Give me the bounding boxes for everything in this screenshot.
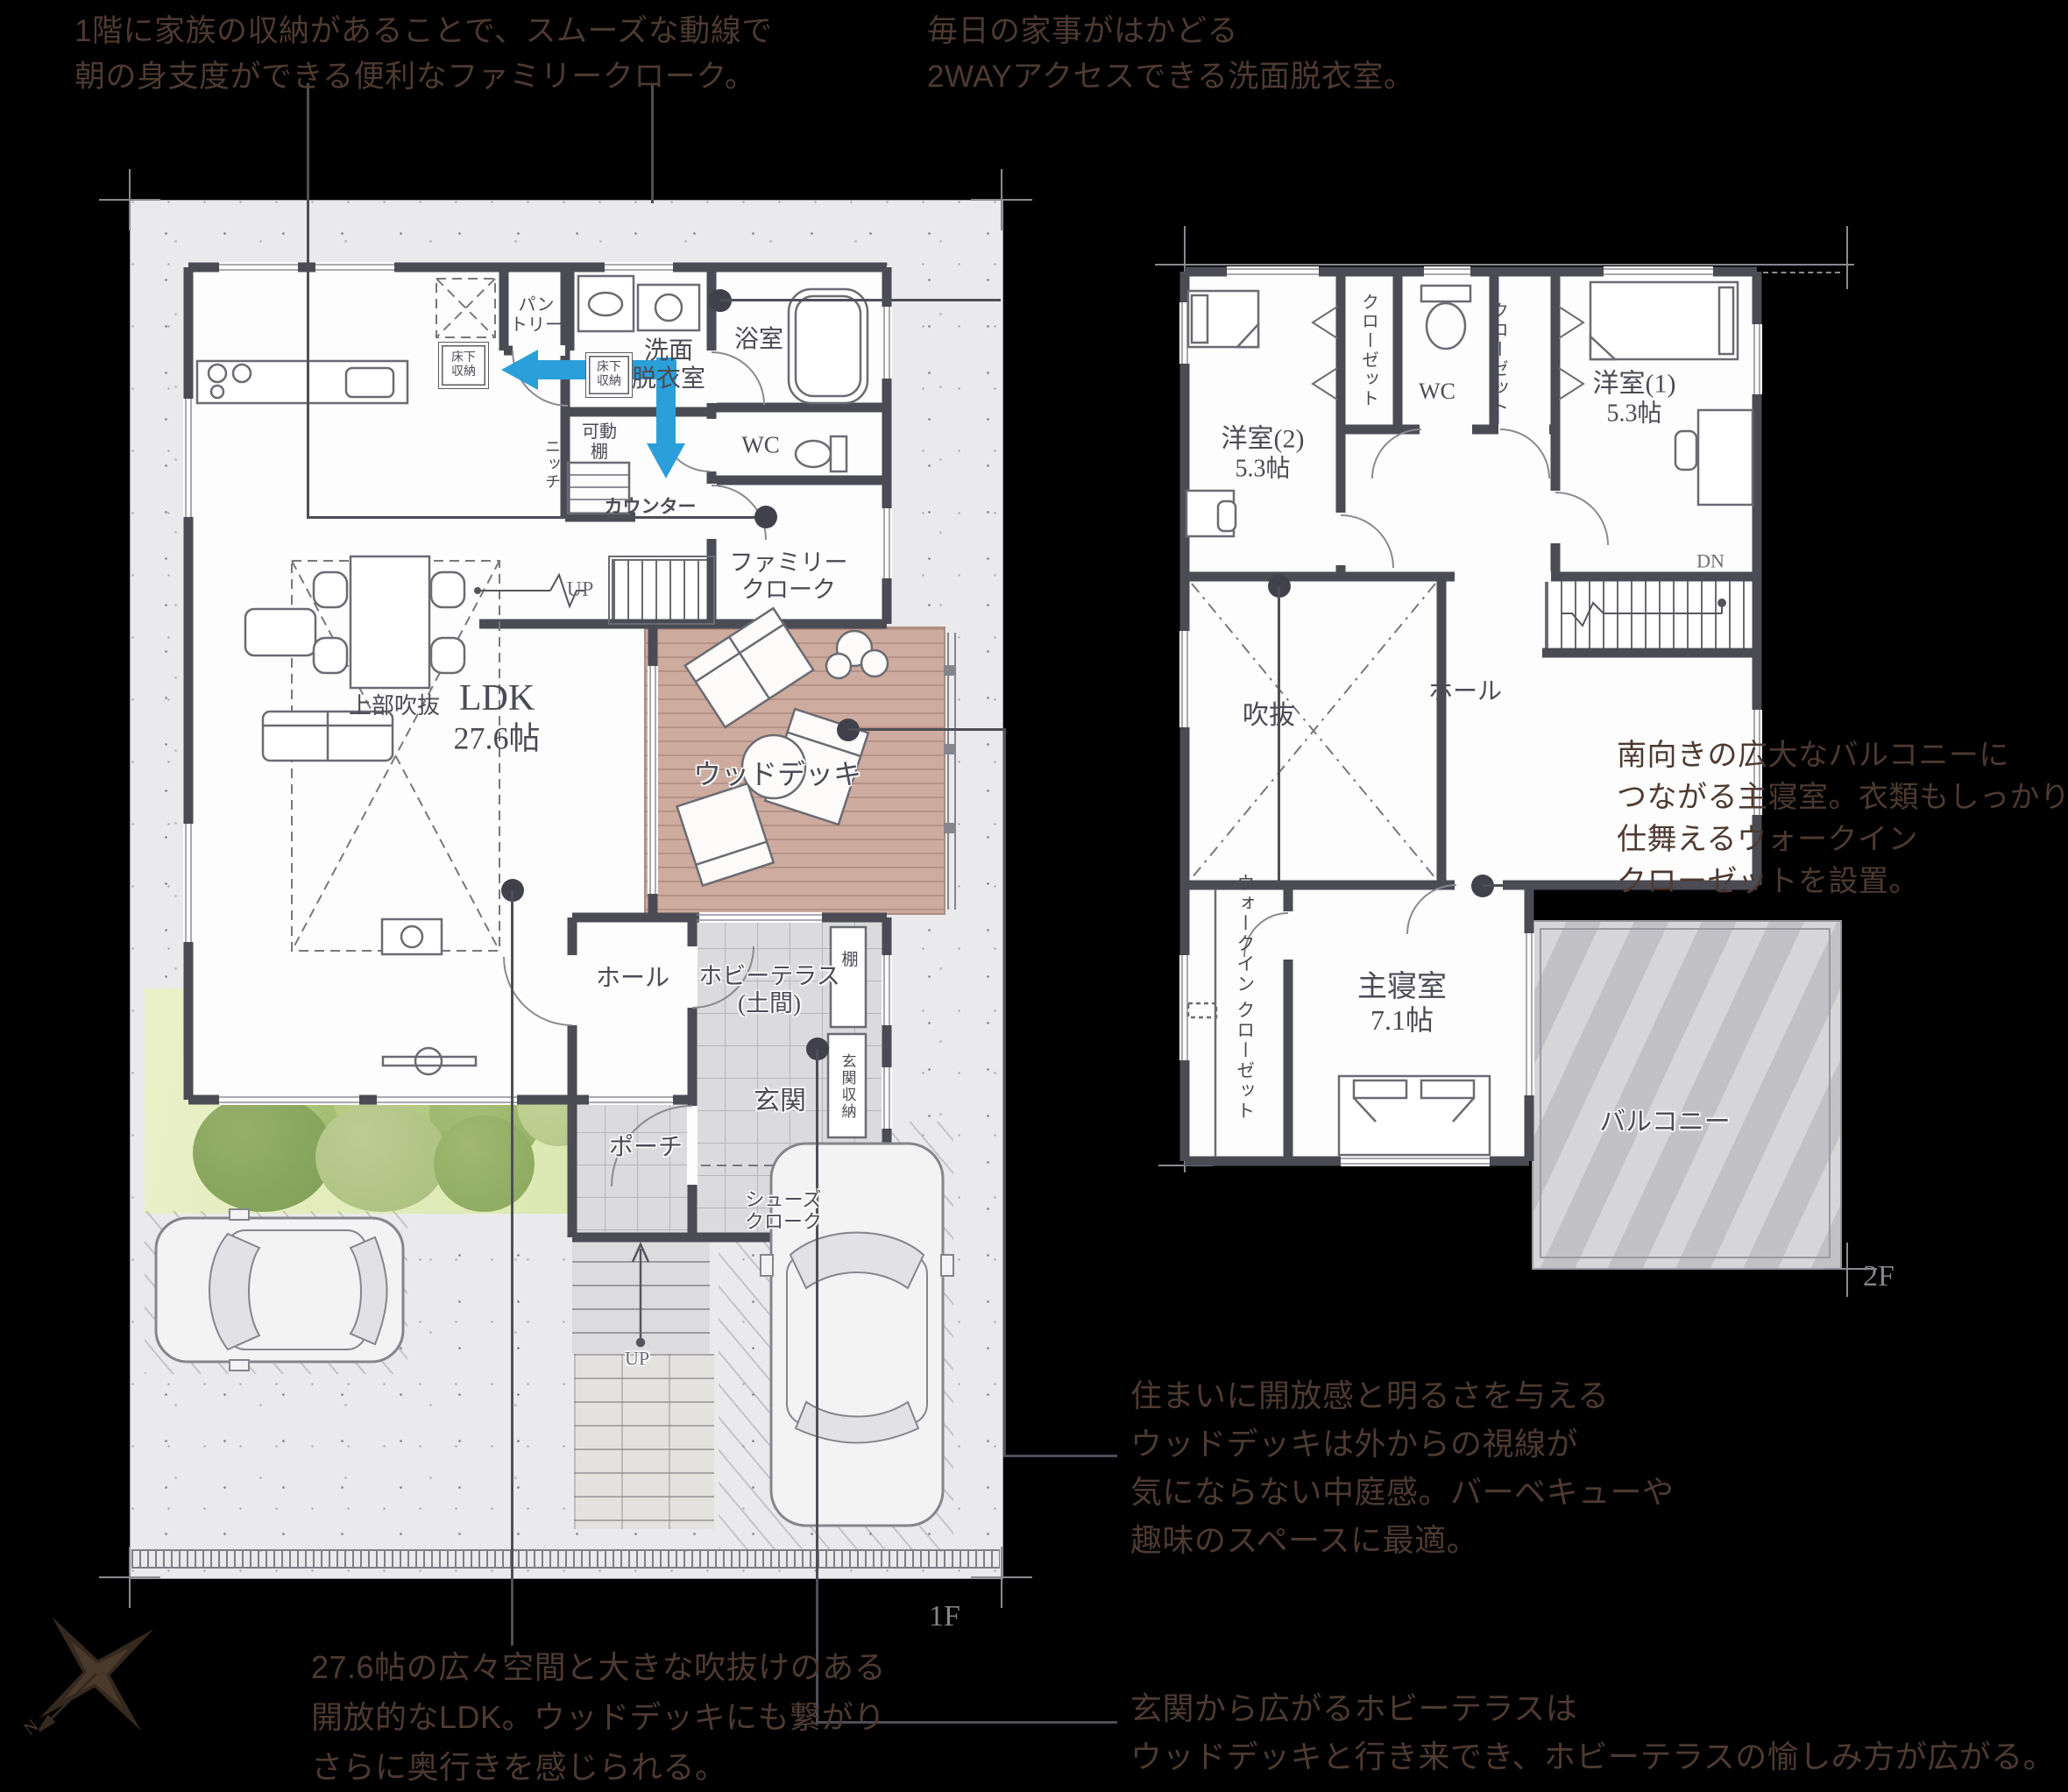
label-room2: 洋室(2) 5.3帖 <box>1222 425 1305 484</box>
label-balcony: バルコニー <box>1599 1108 1730 1138</box>
label-dn: DN <box>1696 549 1725 571</box>
leader-entrance-v <box>816 1049 818 1724</box>
floorplan-page: { "annotations": { "family_cloak": ["1階に… <box>0 0 2068 1788</box>
label-floor-storage-2: 床下収納 <box>585 352 633 398</box>
label-shoes-cloak: シューズ クローク <box>745 1189 822 1234</box>
label-floor-storage-1: 床下収納 <box>438 342 489 389</box>
label-shelf: 棚 <box>837 951 860 969</box>
label-ldk-size: 27.6帖 <box>453 720 540 756</box>
compass-icon <box>22 1599 171 1748</box>
floor-tag-2f: 2F <box>1863 1260 1894 1293</box>
leader-wood-deck-v <box>1003 728 1006 1457</box>
label-ldk: LDK <box>459 677 535 719</box>
leader-master-h <box>1483 884 1630 887</box>
stairs-arrow-2f <box>1562 599 1725 626</box>
deck-furniture <box>677 608 888 886</box>
approach-arrow <box>633 1244 648 1346</box>
label-niche: ニッチ <box>541 438 563 491</box>
leader-washroom-h <box>720 299 1001 301</box>
floor-tag-1f: 1F <box>929 1600 960 1633</box>
label-hobby-terrace: ホビーテラス (土間) <box>698 963 839 1017</box>
label-hall-1f: ホール <box>596 965 669 993</box>
leader-wood-deck-h2 <box>1003 1455 1117 1457</box>
label-family-cloak: ファミリー クローク <box>730 549 848 604</box>
2way-arrow-down-head <box>647 443 685 478</box>
label-wc-2f: WC <box>1419 379 1455 405</box>
label-counter: カウンター <box>605 496 697 517</box>
label-void-above: 上部吹抜 <box>349 693 440 719</box>
label-hall-2f: ホール <box>1428 678 1502 706</box>
stairs-arrow-1f <box>474 556 714 624</box>
label-closet-right: クローゼット <box>1486 301 1512 417</box>
annotation-wood-deck: 住まいに開放感と明るさを与える ウッドデッキは外からの視線が 気にならない中庭感… <box>1130 1371 1675 1564</box>
label-entrance: 玄関 <box>754 1087 806 1117</box>
annotation-ldk: 27.6帖の広々空間と大きな吹抜けのある 開放的なLDK。ウッドデッキにも繋がり… <box>311 1642 886 1792</box>
annotation-family-cloak: 1階に家族の収納があることで、スムーズな動線で 朝の身支度ができる便利なファミリ… <box>74 9 773 100</box>
annotation-washroom: 毎日の家事がはかどる 2WAYアクセスできる洗面脱衣室。 <box>927 9 1414 100</box>
leader-family-cloak-v <box>307 83 309 519</box>
label-void-2f: 吹抜 <box>1243 701 1295 732</box>
deck-railing <box>945 633 955 910</box>
leader-dot-family-cloak <box>754 506 777 528</box>
label-up-1f: UP <box>567 578 594 603</box>
leader-family-cloak-h <box>307 516 766 519</box>
label-bath: 浴室 <box>734 326 783 354</box>
label-pantry: パン トリー <box>510 295 563 336</box>
car-left <box>156 1209 403 1371</box>
label-wood-deck: ウッドデッキ <box>693 759 861 791</box>
annotation-hobby-terrace: 玄関から広がるホビーテラスは ウッドデッキと行き来でき、ホビーテラスの愉しみ方が… <box>1130 1684 2055 1781</box>
label-closet-left: クローゼット <box>1356 293 1382 408</box>
balcony-railing <box>1540 929 1830 1257</box>
label-wc-1f: WC <box>741 431 780 458</box>
label-porch: ポーチ <box>609 1134 683 1162</box>
label-room1: 洋室(1) 5.3帖 <box>1593 370 1676 429</box>
leader-ldk-v <box>511 890 513 1646</box>
leader-washroom-v <box>651 83 654 203</box>
void-dashed-2f <box>1192 584 1435 878</box>
label-washroom: 洗面 脱衣室 <box>632 337 705 393</box>
label-entrance-storage: 玄関収納 <box>837 1053 859 1120</box>
annotation-master-bedroom: 南向きの広大なバルコニーに つながる主寝室。衣類もしっかり 仕舞えるウォークイン… <box>1617 734 2068 903</box>
label-wic: ウォークイン クローゼット <box>1229 873 1259 1121</box>
label-master: 主寝室 7.1帖 <box>1357 970 1447 1037</box>
leader-wood-deck-h1 <box>848 728 1006 731</box>
2way-arrow-left-head <box>501 350 538 390</box>
plan-1f-linework <box>130 200 1002 1577</box>
leader-void-v <box>1278 586 1280 881</box>
label-movable-shelf: 可動 棚 <box>582 422 617 463</box>
label-up-approach: UP <box>625 1347 649 1369</box>
